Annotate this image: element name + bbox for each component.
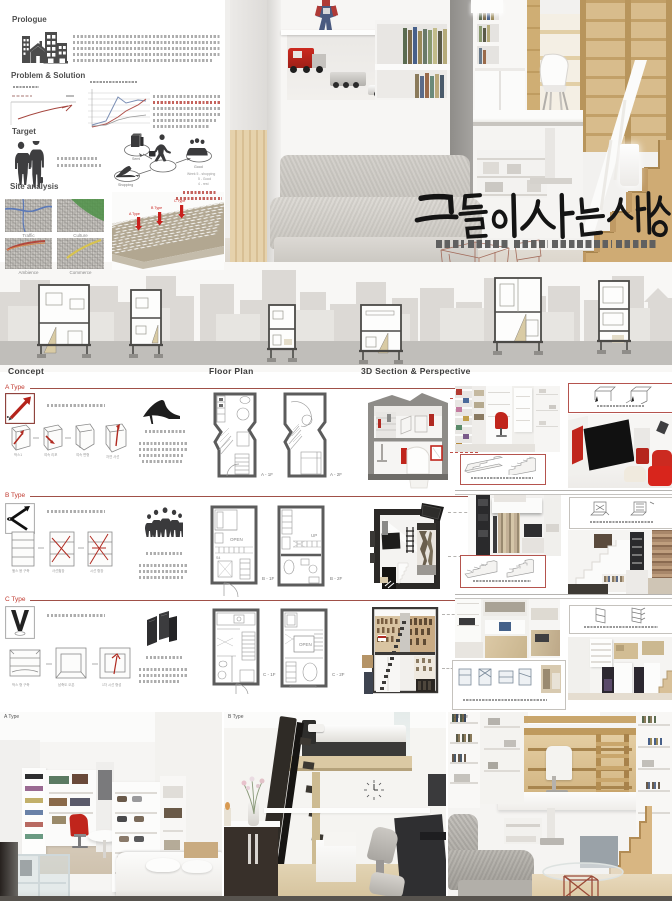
svg-text:C Type: C Type (174, 199, 185, 203)
svg-text:Week 5 - shopping: Week 5 - shopping (187, 172, 215, 176)
svg-text:자연 사선: 자연 사선 (106, 454, 119, 459)
svg-text:OPEN: OPEN (230, 537, 243, 542)
svg-text:Semi: Semi (132, 157, 140, 161)
svg-text:B Type: B Type (151, 206, 162, 210)
svg-text:여속 변형: 여속 변형 (76, 452, 89, 457)
svg-text:Shopping: Shopping (118, 183, 133, 187)
svg-text:A Type: A Type (129, 212, 140, 216)
svg-text:Good: Good (194, 165, 203, 169)
svg-text:S4: S4 (216, 556, 220, 560)
svg-text:박스1: 박스1 (14, 452, 22, 457)
svg-text:뭪스 응 구축: 뭪스 응 구축 (12, 568, 29, 573)
svg-text:UP: UP (311, 533, 317, 538)
svg-text:4 - rest: 4 - rest (198, 182, 209, 186)
svg-text:여속 리포: 여속 리포 (44, 452, 57, 457)
svg-text:1차 시선 형성: 1차 시선 형성 (102, 682, 121, 687)
svg-text:5 - Good: 5 - Good (198, 177, 211, 181)
svg-text:박스 형 구축: 박스 형 구축 (12, 682, 29, 687)
svg-text:사선헖장: 사선헖장 (52, 568, 64, 573)
svg-text:OPEN: OPEN (299, 642, 312, 647)
svg-text:시선 헝장: 시선 헝장 (90, 568, 103, 573)
svg-text:남축도 오픈: 남축도 오픈 (58, 682, 75, 687)
